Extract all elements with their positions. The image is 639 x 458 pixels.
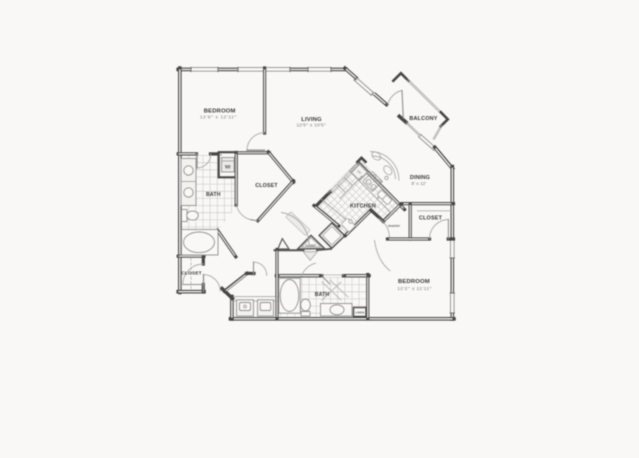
svg-text:BEDROOM: BEDROOM — [398, 279, 430, 285]
svg-text:CLOSET: CLOSET — [419, 215, 443, 221]
svg-text:KITCHEN: KITCHEN — [350, 204, 376, 210]
svg-text:12'5" x 10'5": 12'5" x 10'5" — [296, 123, 326, 129]
svg-text:CLOSET: CLOSET — [305, 244, 316, 247]
svg-text:BATH: BATH — [206, 192, 221, 198]
svg-text:BEDROOM: BEDROOM — [204, 109, 236, 115]
svg-text:BALCONY: BALCONY — [409, 116, 437, 122]
svg-text:8' x 12': 8' x 12' — [411, 181, 426, 186]
svg-text:CLOSET: CLOSET — [181, 270, 202, 276]
svg-text:12'6" x 12'11": 12'6" x 12'11" — [200, 115, 237, 121]
svg-text:LINEN: LINEN — [355, 310, 364, 314]
svg-text:BATH: BATH — [315, 292, 330, 298]
svg-text:W/D: W/D — [225, 164, 231, 168]
svg-text:12'2" x 11'11": 12'2" x 11'11" — [397, 286, 432, 292]
svg-text:CLOSET: CLOSET — [255, 183, 278, 189]
svg-text:PANTRY: PANTRY — [388, 224, 400, 228]
svg-text:LIVING: LIVING — [301, 117, 322, 123]
